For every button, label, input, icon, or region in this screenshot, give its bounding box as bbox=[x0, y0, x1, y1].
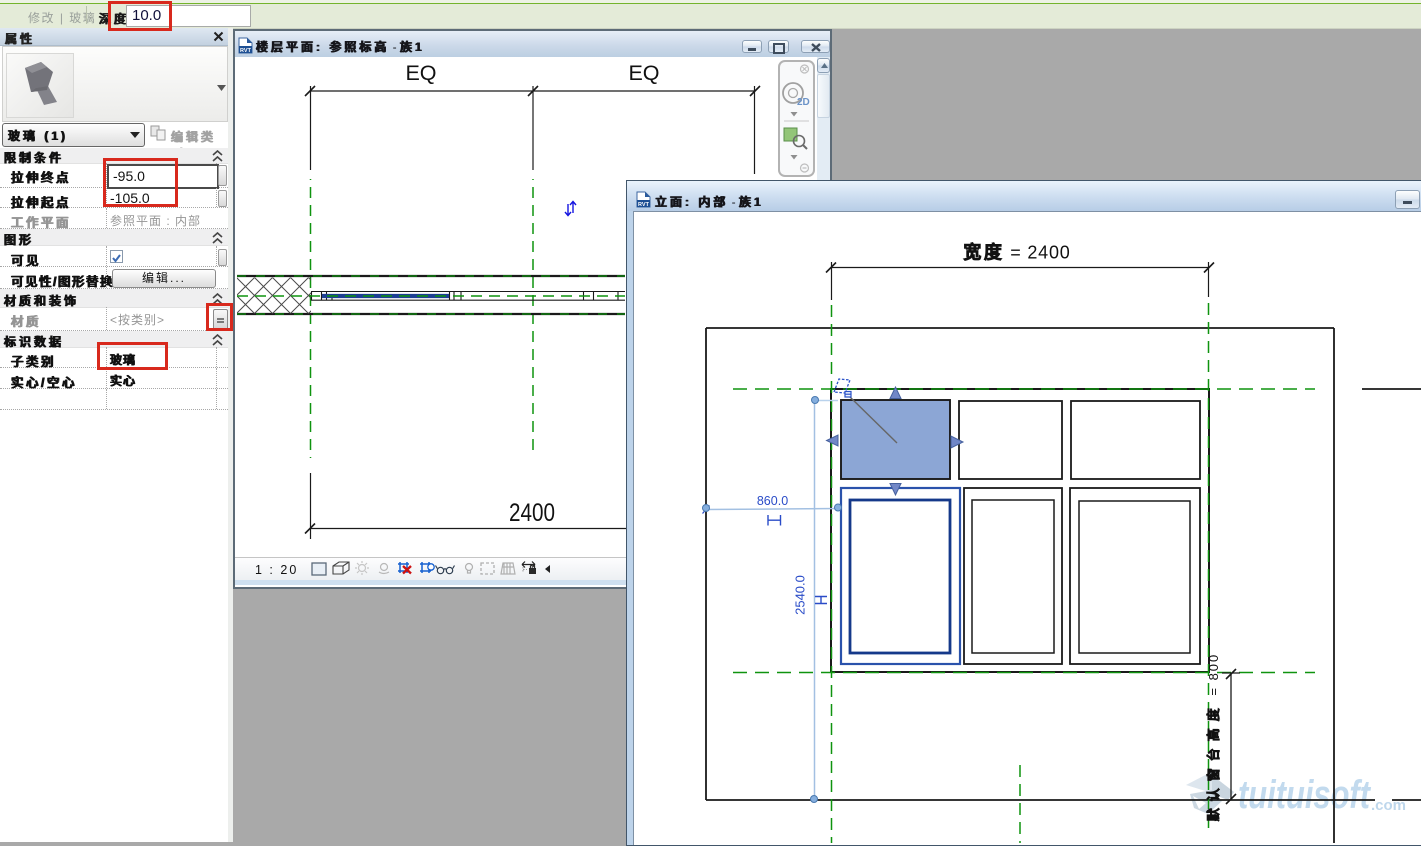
svg-text:默认窗台高度 = 800: 默认窗台高度 = 800 bbox=[1206, 653, 1221, 822]
svg-text:EQ: EQ bbox=[628, 61, 659, 85]
svg-text:1 : 20: 1 : 20 bbox=[255, 563, 298, 577]
svg-text:EQ: EQ bbox=[405, 61, 436, 85]
svg-text:RVT: RVT bbox=[638, 202, 650, 208]
svg-text:2540.0: 2540.0 bbox=[793, 575, 808, 615]
svg-text:RVT: RVT bbox=[240, 48, 252, 54]
svg-text:2D: 2D bbox=[797, 97, 810, 108]
svg-text:2400: 2400 bbox=[509, 499, 555, 527]
svg-text:宽度 = 2400: 宽度 = 2400 bbox=[963, 242, 1070, 263]
svg-text:tuituisoft: tuituisoft bbox=[1238, 773, 1371, 817]
svg-text:860.0: 860.0 bbox=[757, 494, 788, 508]
